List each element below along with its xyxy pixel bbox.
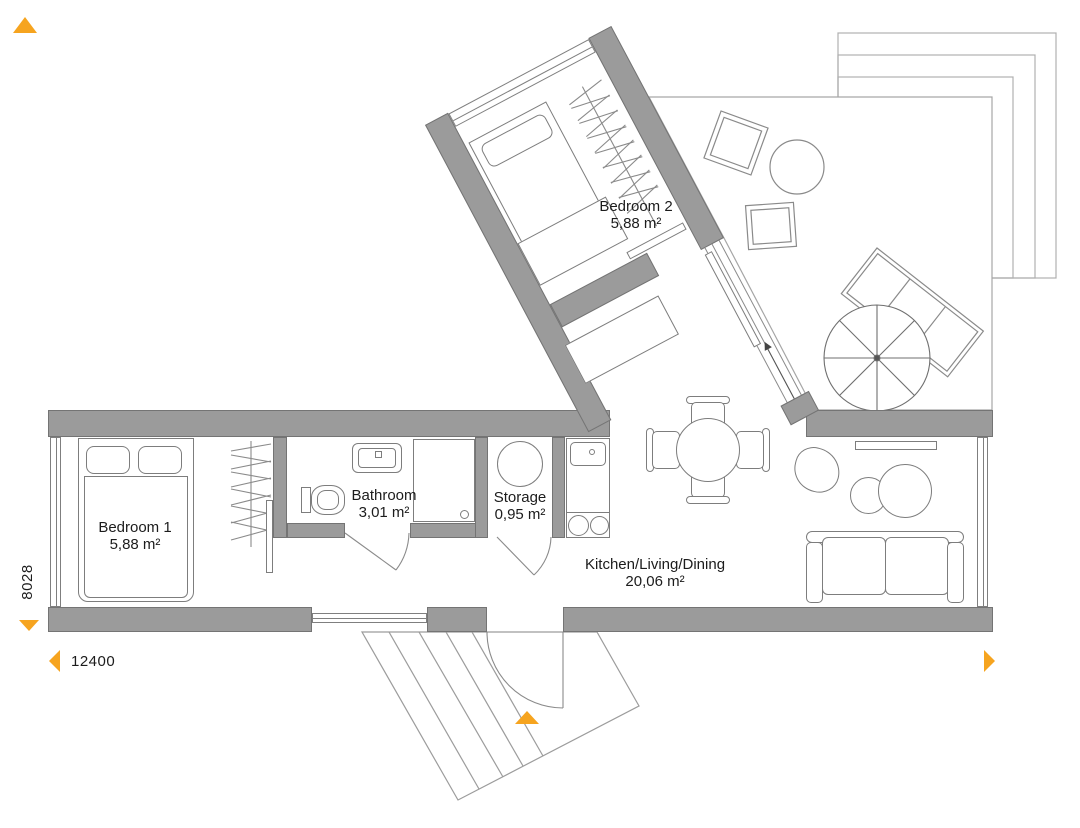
toilet-tank bbox=[301, 487, 311, 513]
wall-bottom-c bbox=[563, 607, 993, 632]
label-storage: Storage 0,95 m² bbox=[450, 489, 590, 524]
label-kitchen-living-dining: Kitchen/Living/Dining 20,06 m² bbox=[545, 556, 765, 591]
parasol-umbrella bbox=[824, 305, 930, 411]
room-area: 20,06 m² bbox=[545, 573, 765, 590]
room-area: 3,01 m² bbox=[314, 504, 454, 521]
sofa-armrest-left bbox=[806, 542, 823, 603]
room-area: 5,88 m² bbox=[65, 536, 205, 553]
bedroom1-pillow-left bbox=[86, 446, 130, 474]
north-up-triangle-icon bbox=[13, 17, 37, 33]
window-east bbox=[977, 437, 988, 607]
wall-bathroom-south-left bbox=[287, 523, 345, 538]
room-name: Kitchen/Living/Dining bbox=[545, 556, 765, 573]
entry-porch bbox=[362, 632, 639, 800]
wall-top-right bbox=[806, 410, 993, 437]
wall-bathroom-south-right bbox=[410, 523, 478, 538]
dining-table bbox=[676, 418, 740, 482]
dimension-height: 8028 bbox=[7, 559, 47, 605]
coffee-table-large bbox=[878, 464, 932, 518]
bathroom-faucet bbox=[375, 451, 382, 458]
window-west bbox=[50, 437, 61, 607]
room-name: Bathroom bbox=[314, 487, 454, 504]
wall-bedroom1-bathroom bbox=[273, 437, 287, 538]
extent-down-triangle-icon bbox=[19, 620, 39, 631]
terrace-table bbox=[770, 140, 824, 194]
dimension-width: 12400 bbox=[71, 653, 115, 670]
extent-left-arrow-icon bbox=[49, 650, 60, 672]
sofa-seat-left bbox=[822, 537, 886, 595]
window-south bbox=[312, 613, 427, 623]
room-area: 5,88 m² bbox=[566, 215, 706, 232]
floor-plan: Bedroom 2 5,88 m² Bedroom 1 5,88 m² Bath… bbox=[0, 0, 1080, 828]
dimension-height-value: 8028 bbox=[19, 564, 36, 599]
terrace-chair-2 bbox=[746, 202, 797, 249]
clothes-rack-bedroom1 bbox=[231, 441, 271, 547]
dining-chair-south-back bbox=[686, 496, 730, 504]
sofa-seat-right bbox=[885, 537, 949, 595]
room-name: Bedroom 2 bbox=[566, 198, 706, 215]
wall-shelf bbox=[855, 441, 937, 450]
label-bedroom1: Bedroom 1 5,88 m² bbox=[65, 519, 205, 554]
bedroom1-sliding-door-panel bbox=[266, 500, 273, 573]
dimension-width-value: 12400 bbox=[71, 653, 115, 670]
wall-top-left bbox=[48, 410, 610, 437]
kitchen-faucet bbox=[589, 449, 595, 455]
label-bedroom2: Bedroom 2 5,88 m² bbox=[566, 198, 706, 233]
burner-right bbox=[590, 516, 609, 535]
room-name: Bedroom 1 bbox=[65, 519, 205, 536]
dining-chair-east bbox=[736, 431, 764, 469]
kitchen-sink bbox=[570, 442, 606, 466]
wall-bottom-b bbox=[427, 607, 487, 632]
sofa-armrest-right bbox=[947, 542, 964, 603]
bedroom1-pillow-right bbox=[138, 446, 182, 474]
bathroom-door bbox=[345, 533, 409, 570]
wall-bottom-a bbox=[48, 607, 312, 632]
entrance-up-triangle-icon bbox=[515, 711, 539, 724]
label-bathroom: Bathroom 3,01 m² bbox=[314, 487, 454, 522]
room-name: Storage bbox=[450, 489, 590, 506]
room-area: 0,95 m² bbox=[450, 506, 590, 523]
extent-right-arrow-icon bbox=[984, 650, 995, 672]
slide-direction-arrow-icon bbox=[761, 340, 772, 351]
washing-machine bbox=[497, 441, 543, 487]
storage-door bbox=[497, 537, 551, 575]
